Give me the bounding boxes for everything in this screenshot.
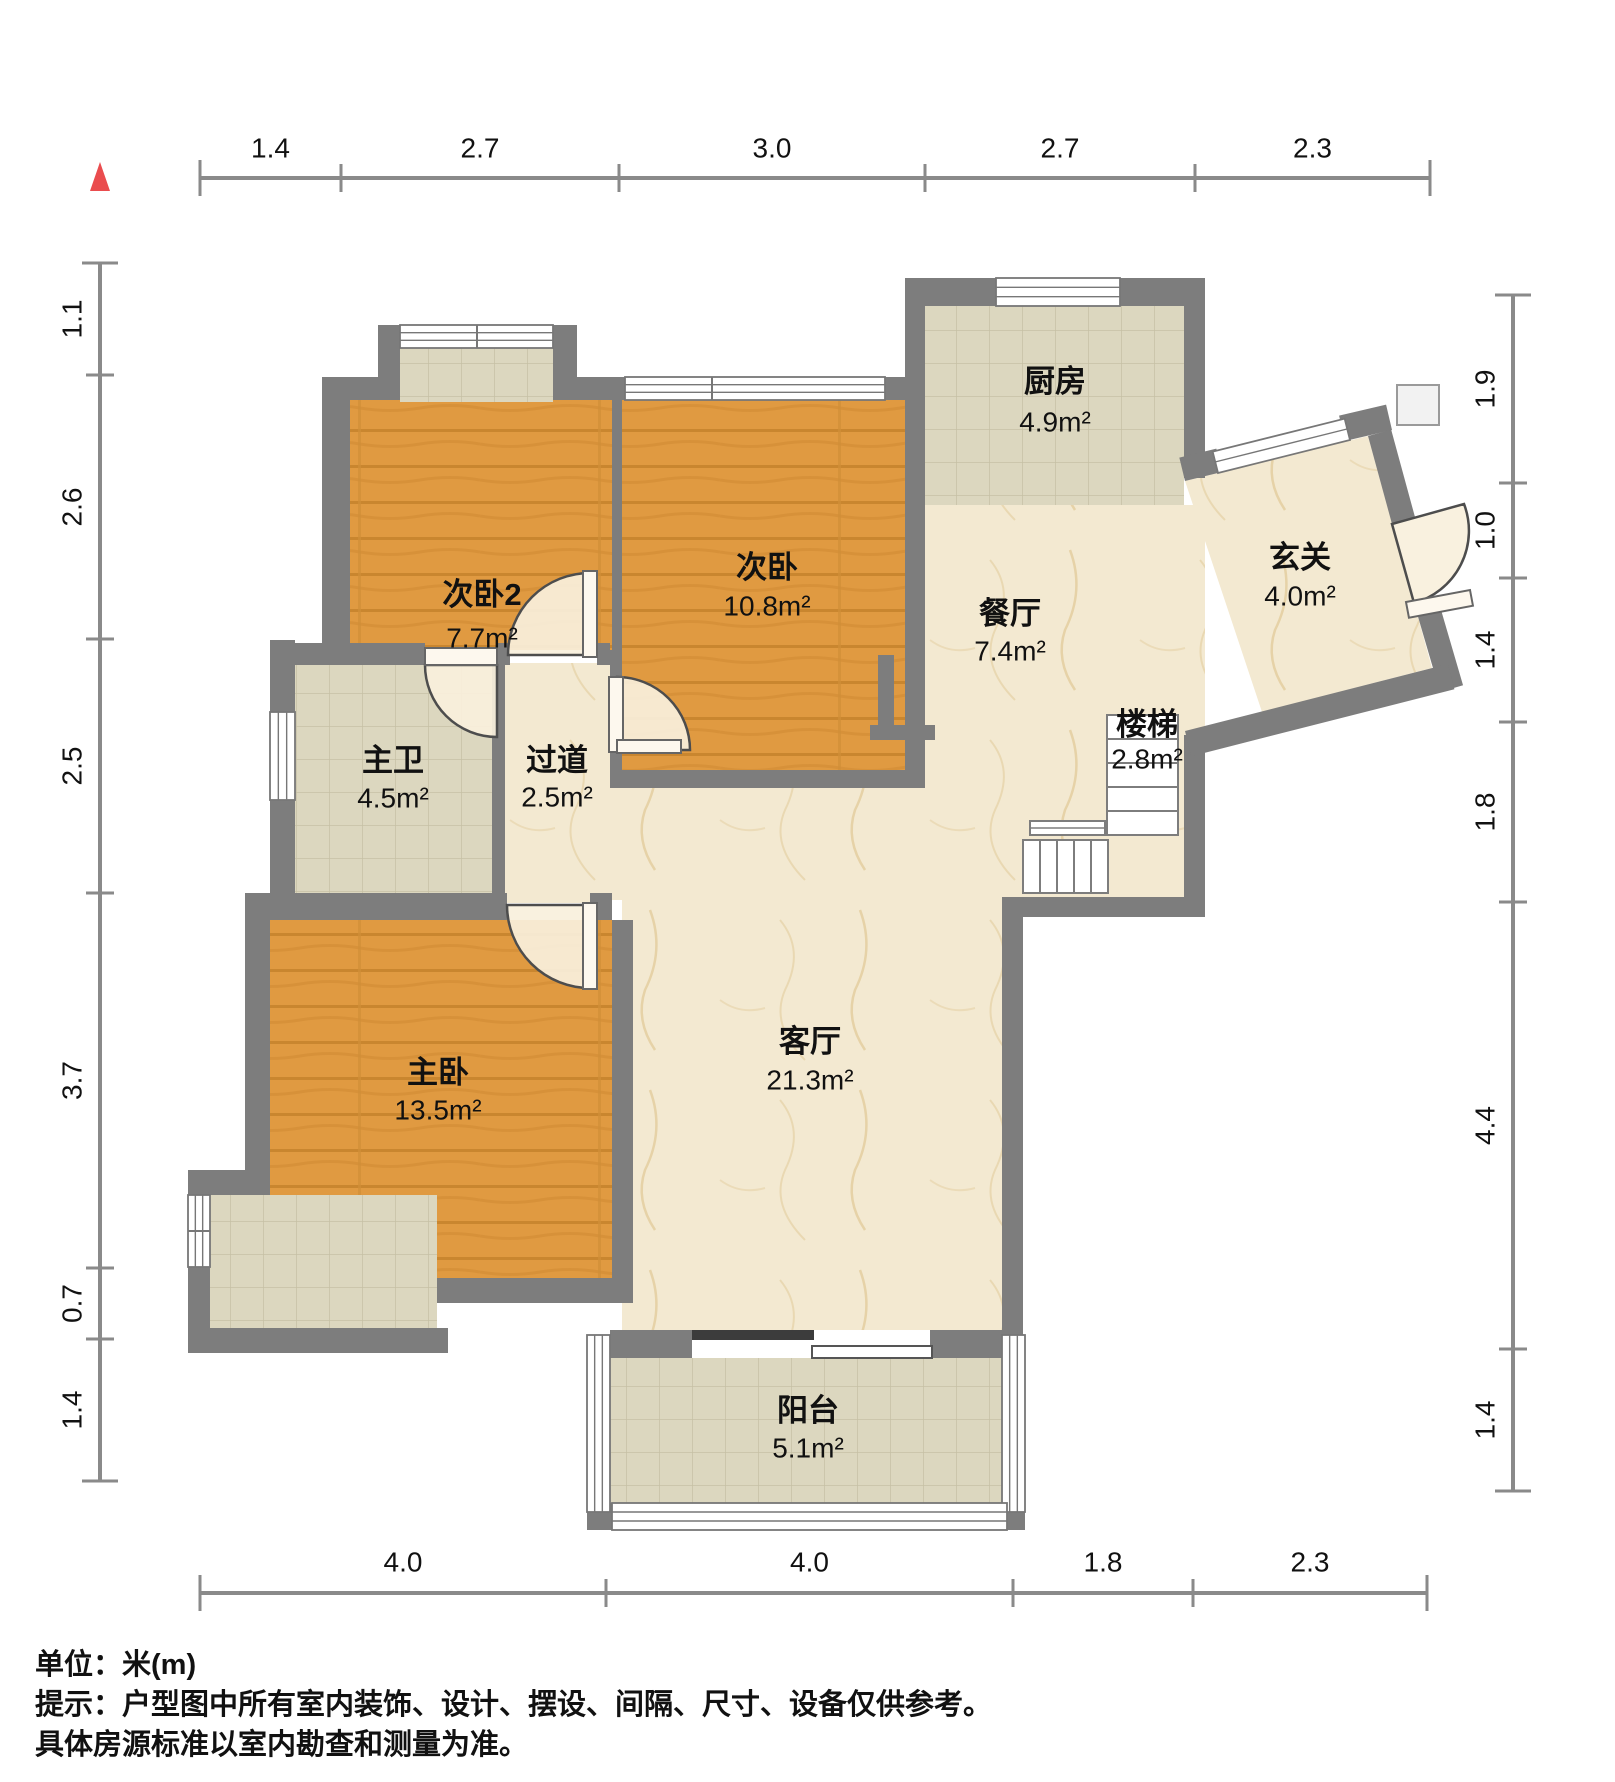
- dim-label: 1.4: [251, 132, 290, 163]
- floor-plan-page: 1.42.73.02.72.34.04.01.82.31.12.62.53.70…: [0, 0, 1615, 1782]
- dim-label: 4.0: [384, 1546, 423, 1577]
- room-label-ciwo: 次卧: [736, 550, 798, 585]
- dim-label: 0.7: [56, 1284, 87, 1323]
- room-label-louti: 楼梯: [1116, 707, 1178, 742]
- room-label-zhuwo: 主卧: [407, 1055, 469, 1090]
- note-tip-line2: 具体房源标准以室内勘查和测量为准。: [35, 1721, 528, 1763]
- dim-label: 1.0: [1469, 511, 1500, 550]
- room-label-ciwo2: 次卧2: [442, 577, 521, 612]
- dim-label: 1.4: [1469, 631, 1500, 670]
- dim-label: 2.7: [1041, 132, 1080, 163]
- dim-label: 3.0: [753, 132, 792, 163]
- room-area-zhuwei: 4.5m²: [357, 782, 429, 813]
- room-area-chufang: 4.9m²: [1019, 406, 1091, 437]
- dim-label: 2.6: [56, 488, 87, 527]
- dim-label: 2.5: [56, 747, 87, 786]
- room-area-yangtai: 5.1m²: [772, 1432, 844, 1463]
- dim-label: 1.4: [56, 1391, 87, 1430]
- room-label-xuanguan: 玄关: [1269, 540, 1331, 575]
- room-area-louti: 2.8m²: [1111, 743, 1183, 774]
- room-area-ciwo: 10.8m²: [723, 590, 810, 621]
- room-area-xuanguan: 4.0m²: [1264, 580, 1336, 611]
- north-indicator: [90, 162, 110, 191]
- north-arrow-icon: [90, 162, 110, 191]
- dim-label: 1.9: [1469, 370, 1500, 409]
- room-label-zhuwei: 主卫: [362, 743, 424, 778]
- dim-label: 1.8: [1469, 793, 1500, 832]
- dim-label: 1.8: [1084, 1546, 1123, 1577]
- dim-label: 2.7: [461, 132, 500, 163]
- room-label-guodao: 过道: [526, 743, 588, 778]
- room-area-ciwo2: 7.7m²: [446, 622, 518, 653]
- dim-label: 1.4: [1469, 1401, 1500, 1440]
- room-area-canting: 7.4m²: [974, 635, 1046, 666]
- note-tip-line1: 提示：户型图中所有室内装饰、设计、摆设、间隔、尺寸、设备仅供参考。: [35, 1681, 992, 1723]
- dim-label: 2.3: [1291, 1546, 1330, 1577]
- room-area-keting: 21.3m²: [766, 1064, 853, 1095]
- room-label-canting: 餐厅: [979, 596, 1041, 631]
- room-area-zhuwo: 13.5m²: [394, 1094, 481, 1125]
- room-area-guodao: 2.5m²: [521, 781, 593, 812]
- note-unit: 单位：米(m): [35, 1641, 196, 1683]
- dim-label: 3.7: [56, 1061, 87, 1100]
- room-label-keting: 客厅: [779, 1024, 841, 1059]
- dim-label: 1.1: [56, 300, 87, 339]
- dim-label: 2.3: [1293, 132, 1332, 163]
- dim-label: 4.4: [1469, 1106, 1500, 1145]
- floor-plan-canvas: 1.42.73.02.72.34.04.01.82.31.12.62.53.70…: [0, 0, 1615, 1782]
- dim-label: 4.0: [790, 1546, 829, 1577]
- room-label-chufang: 厨房: [1024, 364, 1086, 399]
- room-label-yangtai: 阳台: [777, 1393, 839, 1428]
